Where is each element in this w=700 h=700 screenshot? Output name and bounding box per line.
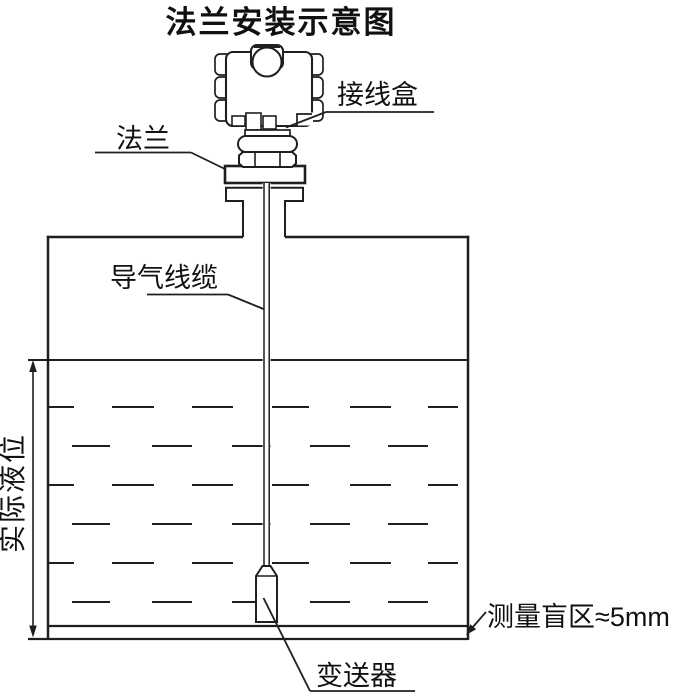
blind-zone-leader-line: [472, 612, 486, 628]
liquid-dashes-even-rows: [72, 446, 428, 602]
blind-zone-callout: 测量盲区≈5mm: [466, 602, 670, 635]
flange-installation-diagram: 法兰安装示意图 实际液位: [0, 0, 700, 700]
hex-nut: [239, 152, 296, 167]
air-cable-label: 导气线缆: [110, 263, 218, 293]
air-cable-callout: 导气线缆: [110, 263, 264, 309]
junction-box-label: 接线盒: [337, 80, 418, 110]
flange-label: 法兰: [116, 124, 170, 154]
flange-plate: [225, 166, 305, 183]
air-cable-leader-line: [228, 295, 264, 310]
transmitter-label: 变送器: [316, 661, 397, 691]
diagram-title: 法兰安装示意图: [166, 5, 397, 40]
dimension-arrow-up-icon: [29, 360, 37, 372]
probe-body: [256, 566, 277, 622]
head-cap-window: [253, 48, 282, 77]
terminal-block-center: [246, 113, 261, 130]
swivel-barrel: [238, 136, 297, 152]
flange-leader-line: [191, 153, 226, 170]
dimension-arrow-down-icon: [29, 626, 37, 638]
terminal-block-right: [263, 116, 276, 129]
liquid-dashes-odd-rows: [48, 407, 458, 563]
transmitter-leader-line: [264, 598, 311, 691]
diagram-page: 法兰安装示意图 实际液位: [0, 0, 700, 700]
blind-zone-label: 测量盲区≈5mm: [487, 602, 670, 632]
terminal-block-left: [232, 116, 245, 126]
transmitter-callout: 变送器: [264, 598, 416, 691]
actual-level-label: 实际液位: [0, 433, 28, 553]
flange-callout: 法兰: [95, 124, 226, 170]
terminal-block-group: [232, 113, 276, 130]
